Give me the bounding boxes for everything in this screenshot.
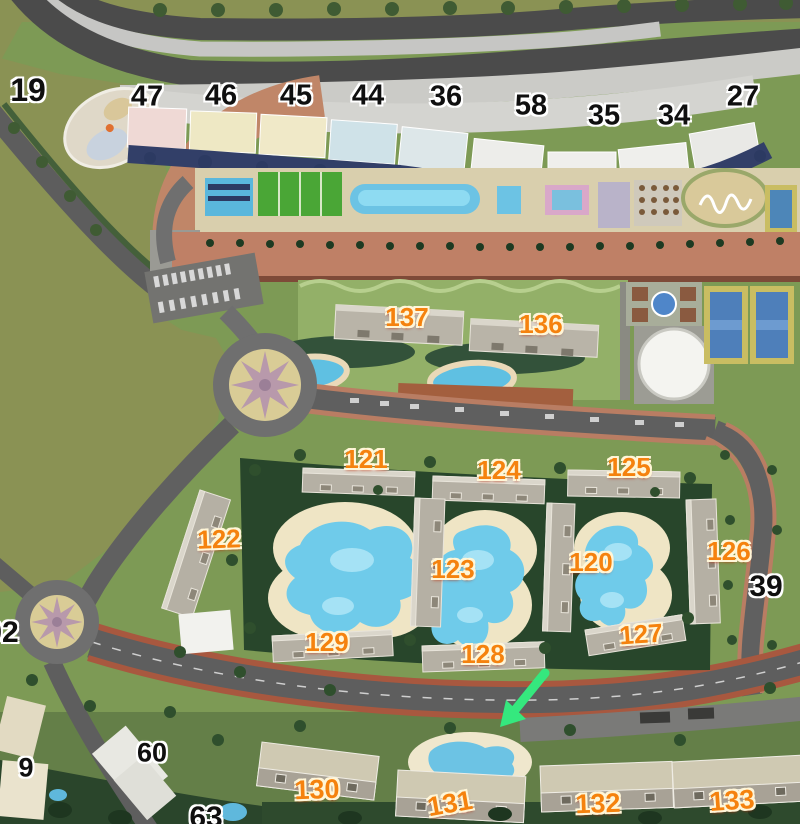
- clubhouse-west: [178, 610, 233, 654]
- roundabout-north: [213, 333, 317, 437]
- label-121: 121: [344, 446, 387, 472]
- play-garden-oval: [683, 170, 767, 226]
- label-124: 124: [477, 457, 520, 483]
- label-35: 35: [588, 102, 620, 131]
- label-63: 63: [189, 803, 222, 824]
- label-44: 44: [352, 82, 384, 111]
- building-45: [259, 114, 327, 157]
- label-58: 58: [515, 92, 547, 121]
- bus-shelter: [640, 711, 670, 723]
- label-130: 130: [294, 776, 340, 805]
- label-136: 136: [519, 311, 562, 337]
- label-127: 127: [618, 620, 663, 649]
- label-133: 133: [709, 786, 756, 816]
- brick-promenade: [172, 232, 800, 282]
- building-46: [189, 111, 256, 153]
- label-34: 34: [658, 102, 690, 131]
- dome-building: [634, 326, 714, 404]
- label-120: 120: [569, 549, 612, 575]
- label-19: 19: [10, 74, 46, 106]
- label-46: 46: [205, 82, 237, 111]
- label-45: 45: [280, 82, 312, 111]
- roundabout-south: [15, 580, 99, 664]
- label-129: 129: [305, 629, 348, 655]
- building-44: [329, 120, 398, 165]
- label-36: 36: [430, 83, 462, 112]
- site-plan-map: 19 47 46 45 44 36 58 35 34 27 137 136 12…: [0, 0, 800, 824]
- label-02: 02: [0, 618, 19, 648]
- label-126: 126: [707, 538, 750, 564]
- label-123: 123: [431, 556, 474, 582]
- label-27: 27: [727, 83, 759, 112]
- fountain: [652, 292, 676, 316]
- label-137: 137: [385, 304, 428, 330]
- label-122: 122: [197, 525, 241, 552]
- fountain-square: [626, 282, 702, 326]
- building-47: [127, 107, 186, 149]
- bus-shelter: [688, 708, 714, 720]
- label-39: 39: [749, 572, 782, 602]
- label-125: 125: [607, 454, 650, 480]
- label-9: 9: [18, 755, 33, 782]
- label-128: 128: [461, 641, 504, 667]
- label-132: 132: [575, 790, 621, 819]
- label-60: 60: [137, 740, 167, 767]
- clubhouse-building: [598, 182, 630, 228]
- label-47: 47: [131, 83, 163, 112]
